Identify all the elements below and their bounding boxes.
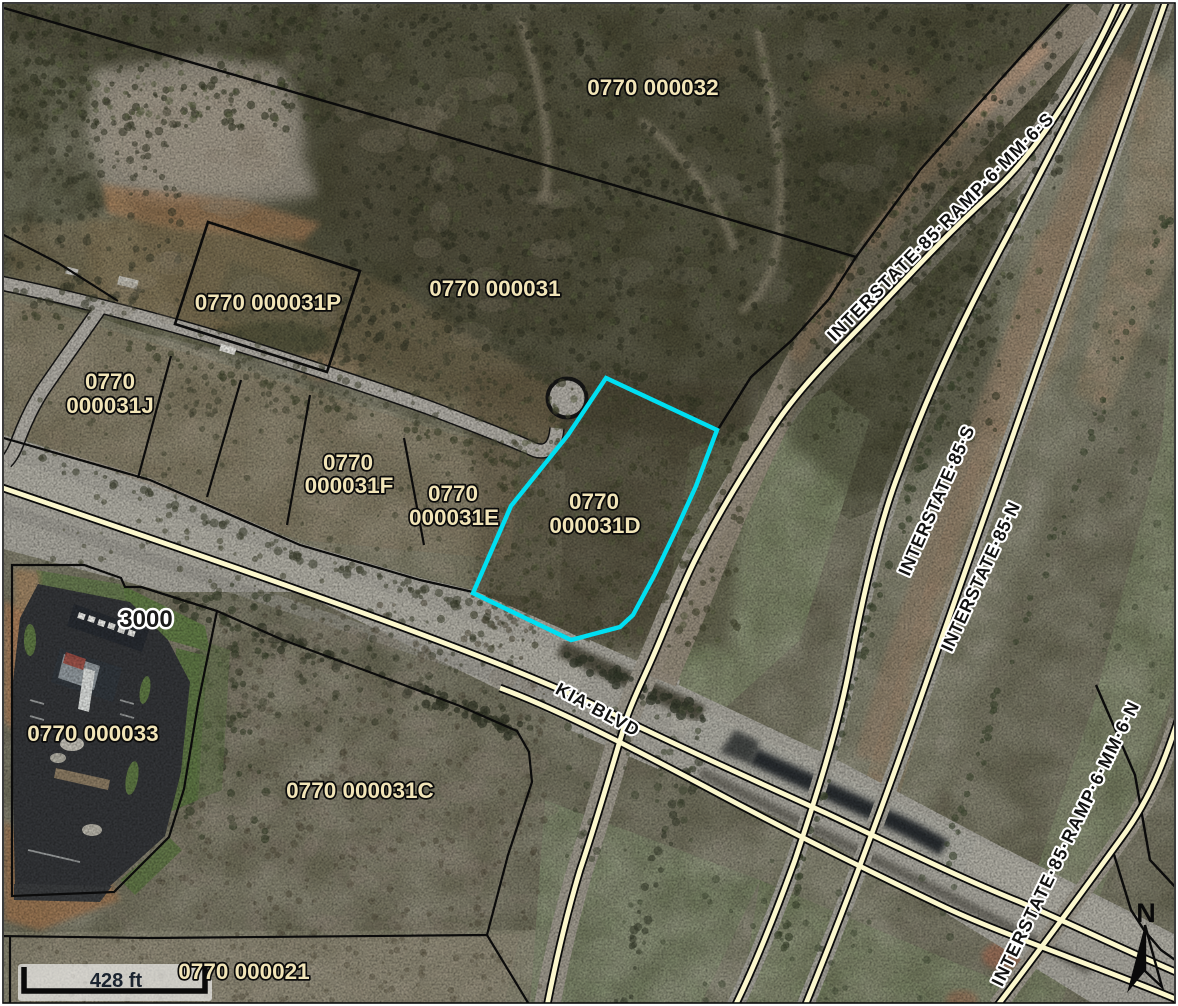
- svg-text:000031J: 000031J: [66, 393, 154, 418]
- svg-text:428 ft: 428 ft: [90, 970, 143, 992]
- svg-text:0770 000031: 0770 000031: [429, 276, 560, 301]
- svg-text:0770: 0770: [85, 369, 135, 394]
- svg-text:000031F: 000031F: [305, 473, 394, 498]
- svg-text:0770 000031P: 0770 000031P: [195, 290, 341, 315]
- svg-text:0770: 0770: [569, 489, 619, 514]
- svg-text:N: N: [1136, 898, 1156, 928]
- svg-text:0770: 0770: [323, 450, 373, 475]
- svg-text:0770 000021: 0770 000021: [178, 959, 309, 984]
- svg-text:0770 000032: 0770 000032: [587, 75, 718, 100]
- svg-text:0770: 0770: [428, 481, 478, 506]
- svg-text:0770 000033: 0770 000033: [27, 721, 158, 746]
- svg-text:000031D: 000031D: [549, 513, 640, 538]
- svg-text:000031E: 000031E: [409, 505, 499, 530]
- svg-text:0770 000031C: 0770 000031C: [286, 778, 434, 803]
- svg-text:3000: 3000: [119, 606, 172, 633]
